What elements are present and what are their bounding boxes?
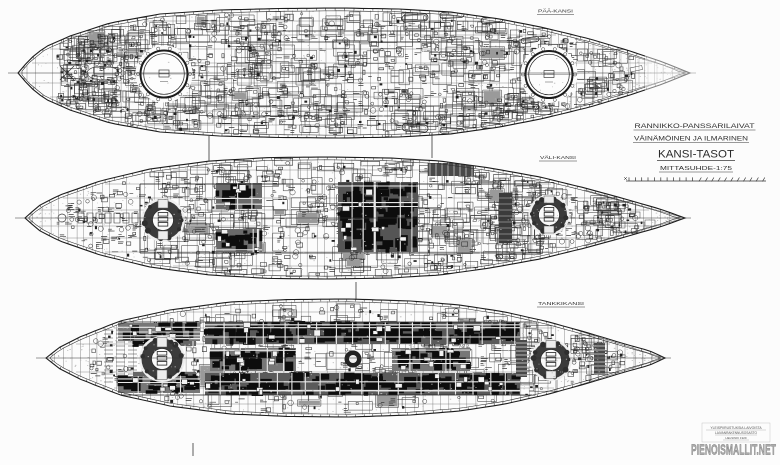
svg-text:PIENOISMALLIT.NET: PIENOISMALLIT.NET [691,442,776,459]
svg-text:LAIVANRAKENNUSOSASTO: LAIVANRAKENNUSOSASTO [715,431,758,435]
svg-text:HELSINKI 1929: HELSINKI 1929 [725,436,747,440]
svg-text:MITTASUHDE-1:75: MITTASUHDE-1:75 [660,166,732,172]
svg-text:VÄINÄMÖINEN JA ILMARINEN: VÄINÄMÖINEN JA ILMARINEN [634,135,748,143]
svg-text:YLEISPIIRUSTUKSIA LAIVOISTA: YLEISPIIRUSTUKSIA LAIVOISTA [710,426,762,430]
svg-text:PÄÄ-KANSI: PÄÄ-KANSI [538,8,573,15]
svg-text:KANSI-TASOT: KANSI-TASOT [658,149,734,161]
svg-text:VÄLI-KANSI: VÄLI-KANSI [540,154,576,161]
svg-text:RANNIKKO-PANSSARILAIVAT: RANNIKKO-PANSSARILAIVAT [635,123,755,130]
svg-text:TANKKIKANSI: TANKKIKANSI [538,301,584,307]
